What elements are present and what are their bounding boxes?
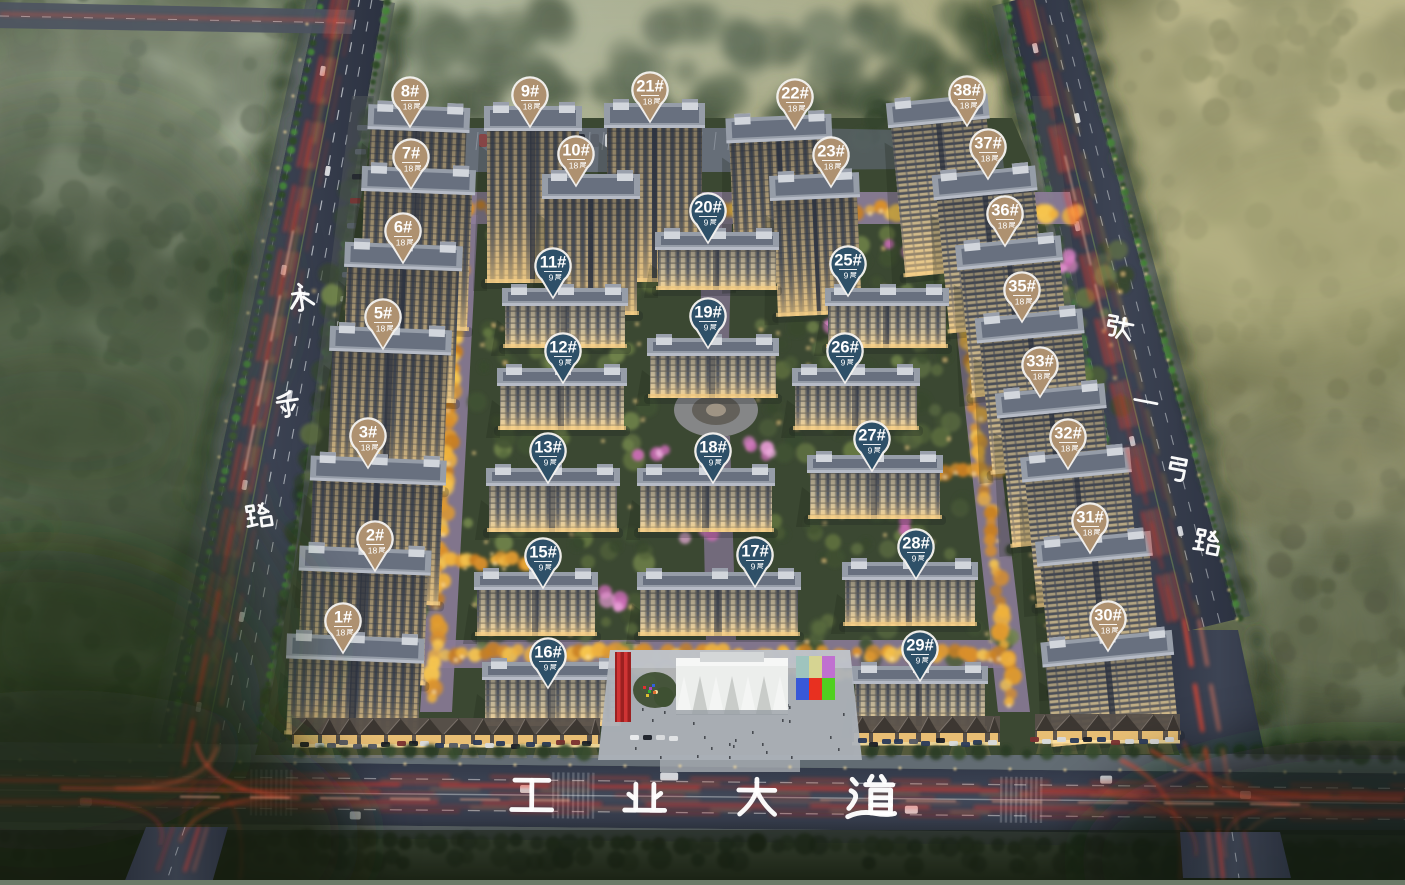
svg-text:16#: 16# <box>534 644 562 662</box>
svg-text:10#: 10# <box>562 142 590 160</box>
svg-text:9: 9 <box>539 563 544 573</box>
svg-text:6#: 6# <box>394 219 412 237</box>
svg-text:9: 9 <box>549 273 554 283</box>
svg-text:29#: 29# <box>906 637 934 655</box>
svg-text:1#: 1# <box>334 609 352 627</box>
svg-text:11#: 11# <box>540 254 567 272</box>
svg-text:18: 18 <box>1033 372 1043 382</box>
svg-text:38#: 38# <box>953 82 981 100</box>
svg-text:18: 18 <box>1083 528 1093 538</box>
svg-text:9: 9 <box>704 323 709 333</box>
svg-text:18: 18 <box>643 97 653 107</box>
svg-text:9: 9 <box>912 554 917 564</box>
svg-text:9: 9 <box>709 458 714 468</box>
svg-text:3#: 3# <box>359 424 377 442</box>
svg-text:18: 18 <box>336 628 346 638</box>
svg-text:18: 18 <box>403 102 413 112</box>
svg-text:33#: 33# <box>1026 353 1054 371</box>
svg-text:9: 9 <box>844 271 849 281</box>
svg-text:9: 9 <box>544 663 549 673</box>
svg-text:18: 18 <box>960 101 970 111</box>
svg-text:18: 18 <box>376 324 386 334</box>
svg-text:2#: 2# <box>366 527 384 545</box>
svg-text:19#: 19# <box>694 304 722 322</box>
svg-text:12#: 12# <box>549 339 577 357</box>
svg-text:18: 18 <box>361 443 371 453</box>
svg-text:18: 18 <box>404 164 414 174</box>
svg-text:25#: 25# <box>834 252 862 270</box>
svg-text:18: 18 <box>523 102 533 112</box>
svg-text:36#: 36# <box>991 202 1019 220</box>
svg-text:26#: 26# <box>831 339 859 357</box>
svg-text:18: 18 <box>569 161 579 171</box>
svg-text:9: 9 <box>916 656 921 666</box>
svg-text:27#: 27# <box>858 427 886 445</box>
svg-text:18: 18 <box>1015 297 1025 307</box>
svg-text:22#: 22# <box>781 85 809 103</box>
svg-text:35#: 35# <box>1008 278 1036 296</box>
svg-text:13#: 13# <box>534 439 562 457</box>
svg-text:32#: 32# <box>1054 425 1082 443</box>
svg-text:18: 18 <box>396 238 406 248</box>
svg-text:18: 18 <box>981 154 991 164</box>
svg-text:23#: 23# <box>817 143 845 161</box>
svg-text:9: 9 <box>868 446 873 456</box>
svg-text:18: 18 <box>1061 444 1071 454</box>
svg-text:9: 9 <box>704 218 709 228</box>
svg-text:18#: 18# <box>699 439 727 457</box>
svg-text:20#: 20# <box>694 199 722 217</box>
svg-text:28#: 28# <box>902 535 930 553</box>
svg-text:9: 9 <box>751 562 756 572</box>
svg-text:5#: 5# <box>374 305 392 323</box>
svg-text:21#: 21# <box>636 78 664 96</box>
svg-text:18: 18 <box>368 546 378 556</box>
svg-text:7#: 7# <box>402 145 420 163</box>
svg-text:9#: 9# <box>521 83 539 101</box>
svg-text:9: 9 <box>544 458 549 468</box>
svg-text:18: 18 <box>1101 626 1111 636</box>
svg-text:18: 18 <box>998 221 1008 231</box>
svg-text:15#: 15# <box>529 544 557 562</box>
svg-text:9: 9 <box>841 358 846 368</box>
svg-text:17#: 17# <box>741 543 769 561</box>
svg-text:18: 18 <box>788 104 798 114</box>
svg-text:9: 9 <box>559 358 564 368</box>
svg-text:30#: 30# <box>1094 607 1122 625</box>
svg-text:8#: 8# <box>401 83 419 101</box>
svg-text:18: 18 <box>824 162 834 172</box>
svg-text:31#: 31# <box>1076 509 1104 527</box>
svg-text:37#: 37# <box>974 135 1002 153</box>
